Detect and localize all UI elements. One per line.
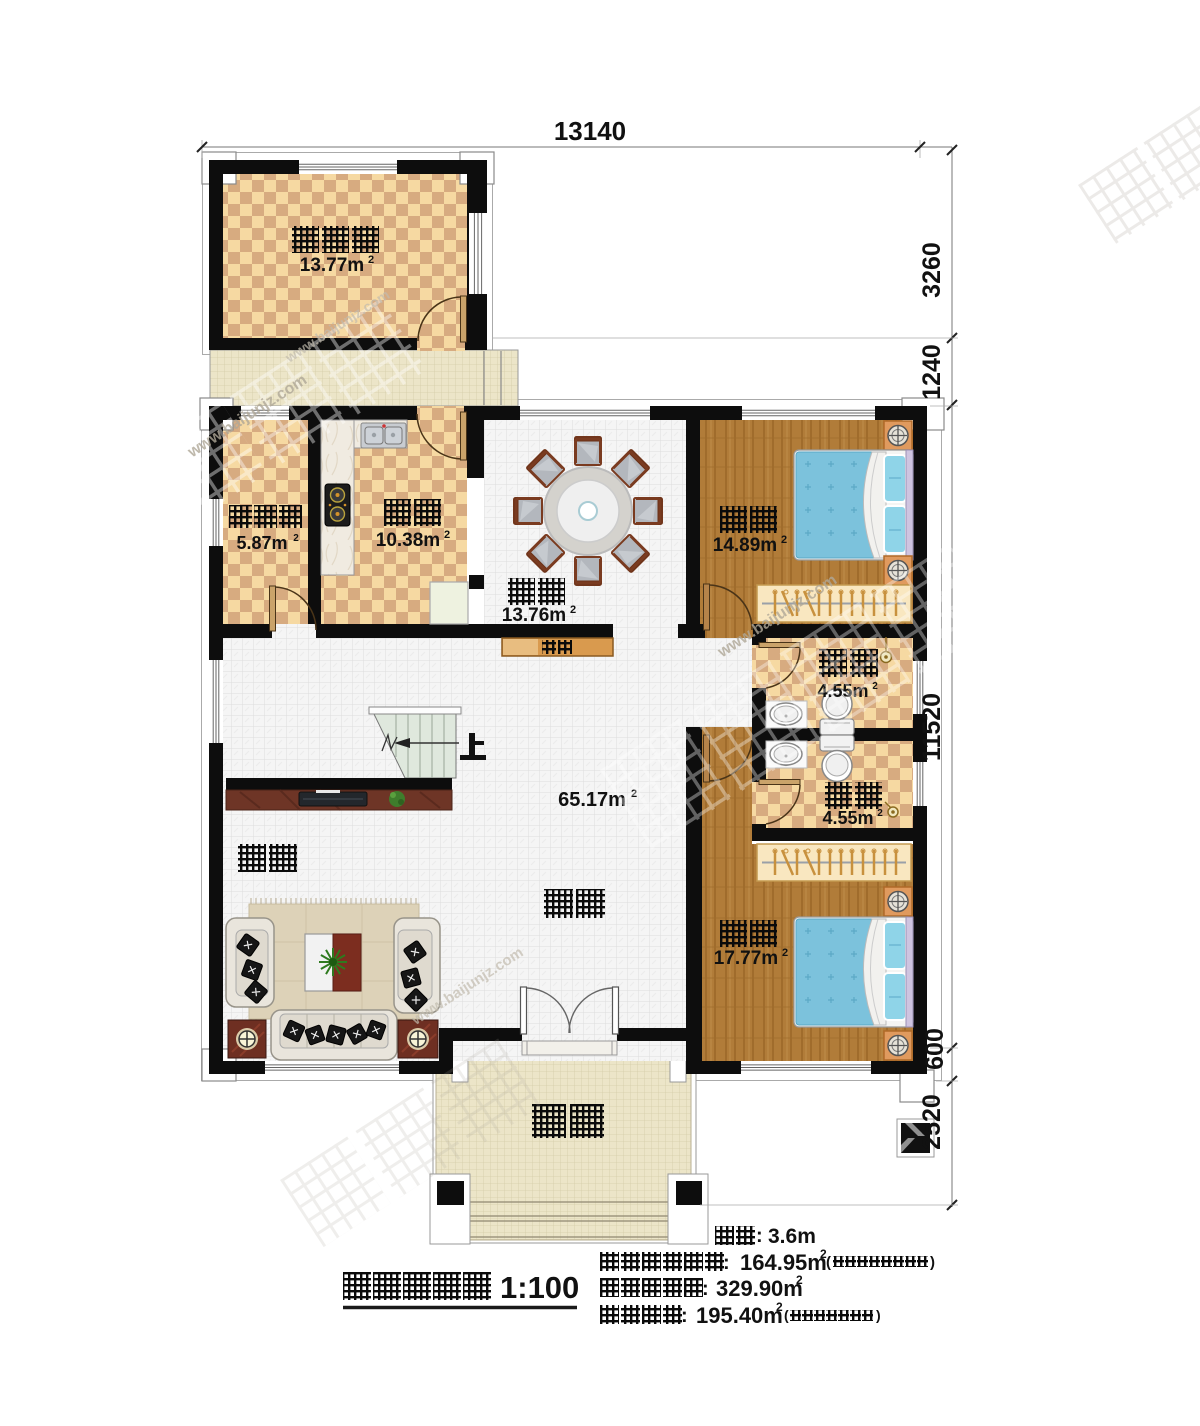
svg-text:13.77m: 13.77m: [300, 255, 364, 276]
svg-text:2: 2: [796, 1273, 803, 1287]
svg-text::: :: [723, 1252, 730, 1274]
svg-text:14.89m: 14.89m: [713, 535, 777, 556]
svg-text:2: 2: [782, 947, 788, 959]
svg-text:): ): [876, 1307, 881, 1323]
svg-text:195.40m: 195.40m: [696, 1303, 783, 1328]
svg-text:1240: 1240: [918, 344, 946, 400]
svg-text:(: (: [826, 1254, 831, 1271]
svg-text:13.76m: 13.76m: [502, 605, 566, 626]
svg-text:2: 2: [570, 604, 576, 616]
svg-text:2: 2: [368, 254, 374, 266]
svg-text:3.6m: 3.6m: [768, 1225, 816, 1248]
svg-text:329.90m: 329.90m: [716, 1276, 803, 1301]
svg-text:2520: 2520: [918, 1094, 946, 1150]
svg-text:17.77m: 17.77m: [714, 948, 778, 969]
svg-text::: :: [702, 1278, 709, 1300]
svg-text:2: 2: [776, 1300, 783, 1314]
svg-text:4.55m: 4.55m: [822, 808, 873, 828]
svg-text:11520: 11520: [918, 693, 946, 761]
svg-text:1:100: 1:100: [500, 1270, 579, 1305]
svg-text:10.38m: 10.38m: [376, 530, 440, 551]
svg-text:5.87m: 5.87m: [236, 533, 287, 553]
svg-text:600: 600: [921, 1028, 949, 1070]
svg-text:2: 2: [293, 533, 299, 544]
svg-text:2: 2: [781, 534, 787, 546]
svg-text::: :: [681, 1305, 688, 1327]
svg-text:13140: 13140: [554, 116, 626, 146]
svg-text:2: 2: [444, 529, 450, 541]
svg-text::: :: [756, 1225, 763, 1247]
svg-text:164.95m: 164.95m: [740, 1250, 827, 1275]
svg-text:3260: 3260: [918, 242, 946, 298]
svg-text:(: (: [784, 1307, 789, 1323]
svg-text:): ): [930, 1254, 935, 1271]
svg-text:2: 2: [877, 808, 883, 819]
